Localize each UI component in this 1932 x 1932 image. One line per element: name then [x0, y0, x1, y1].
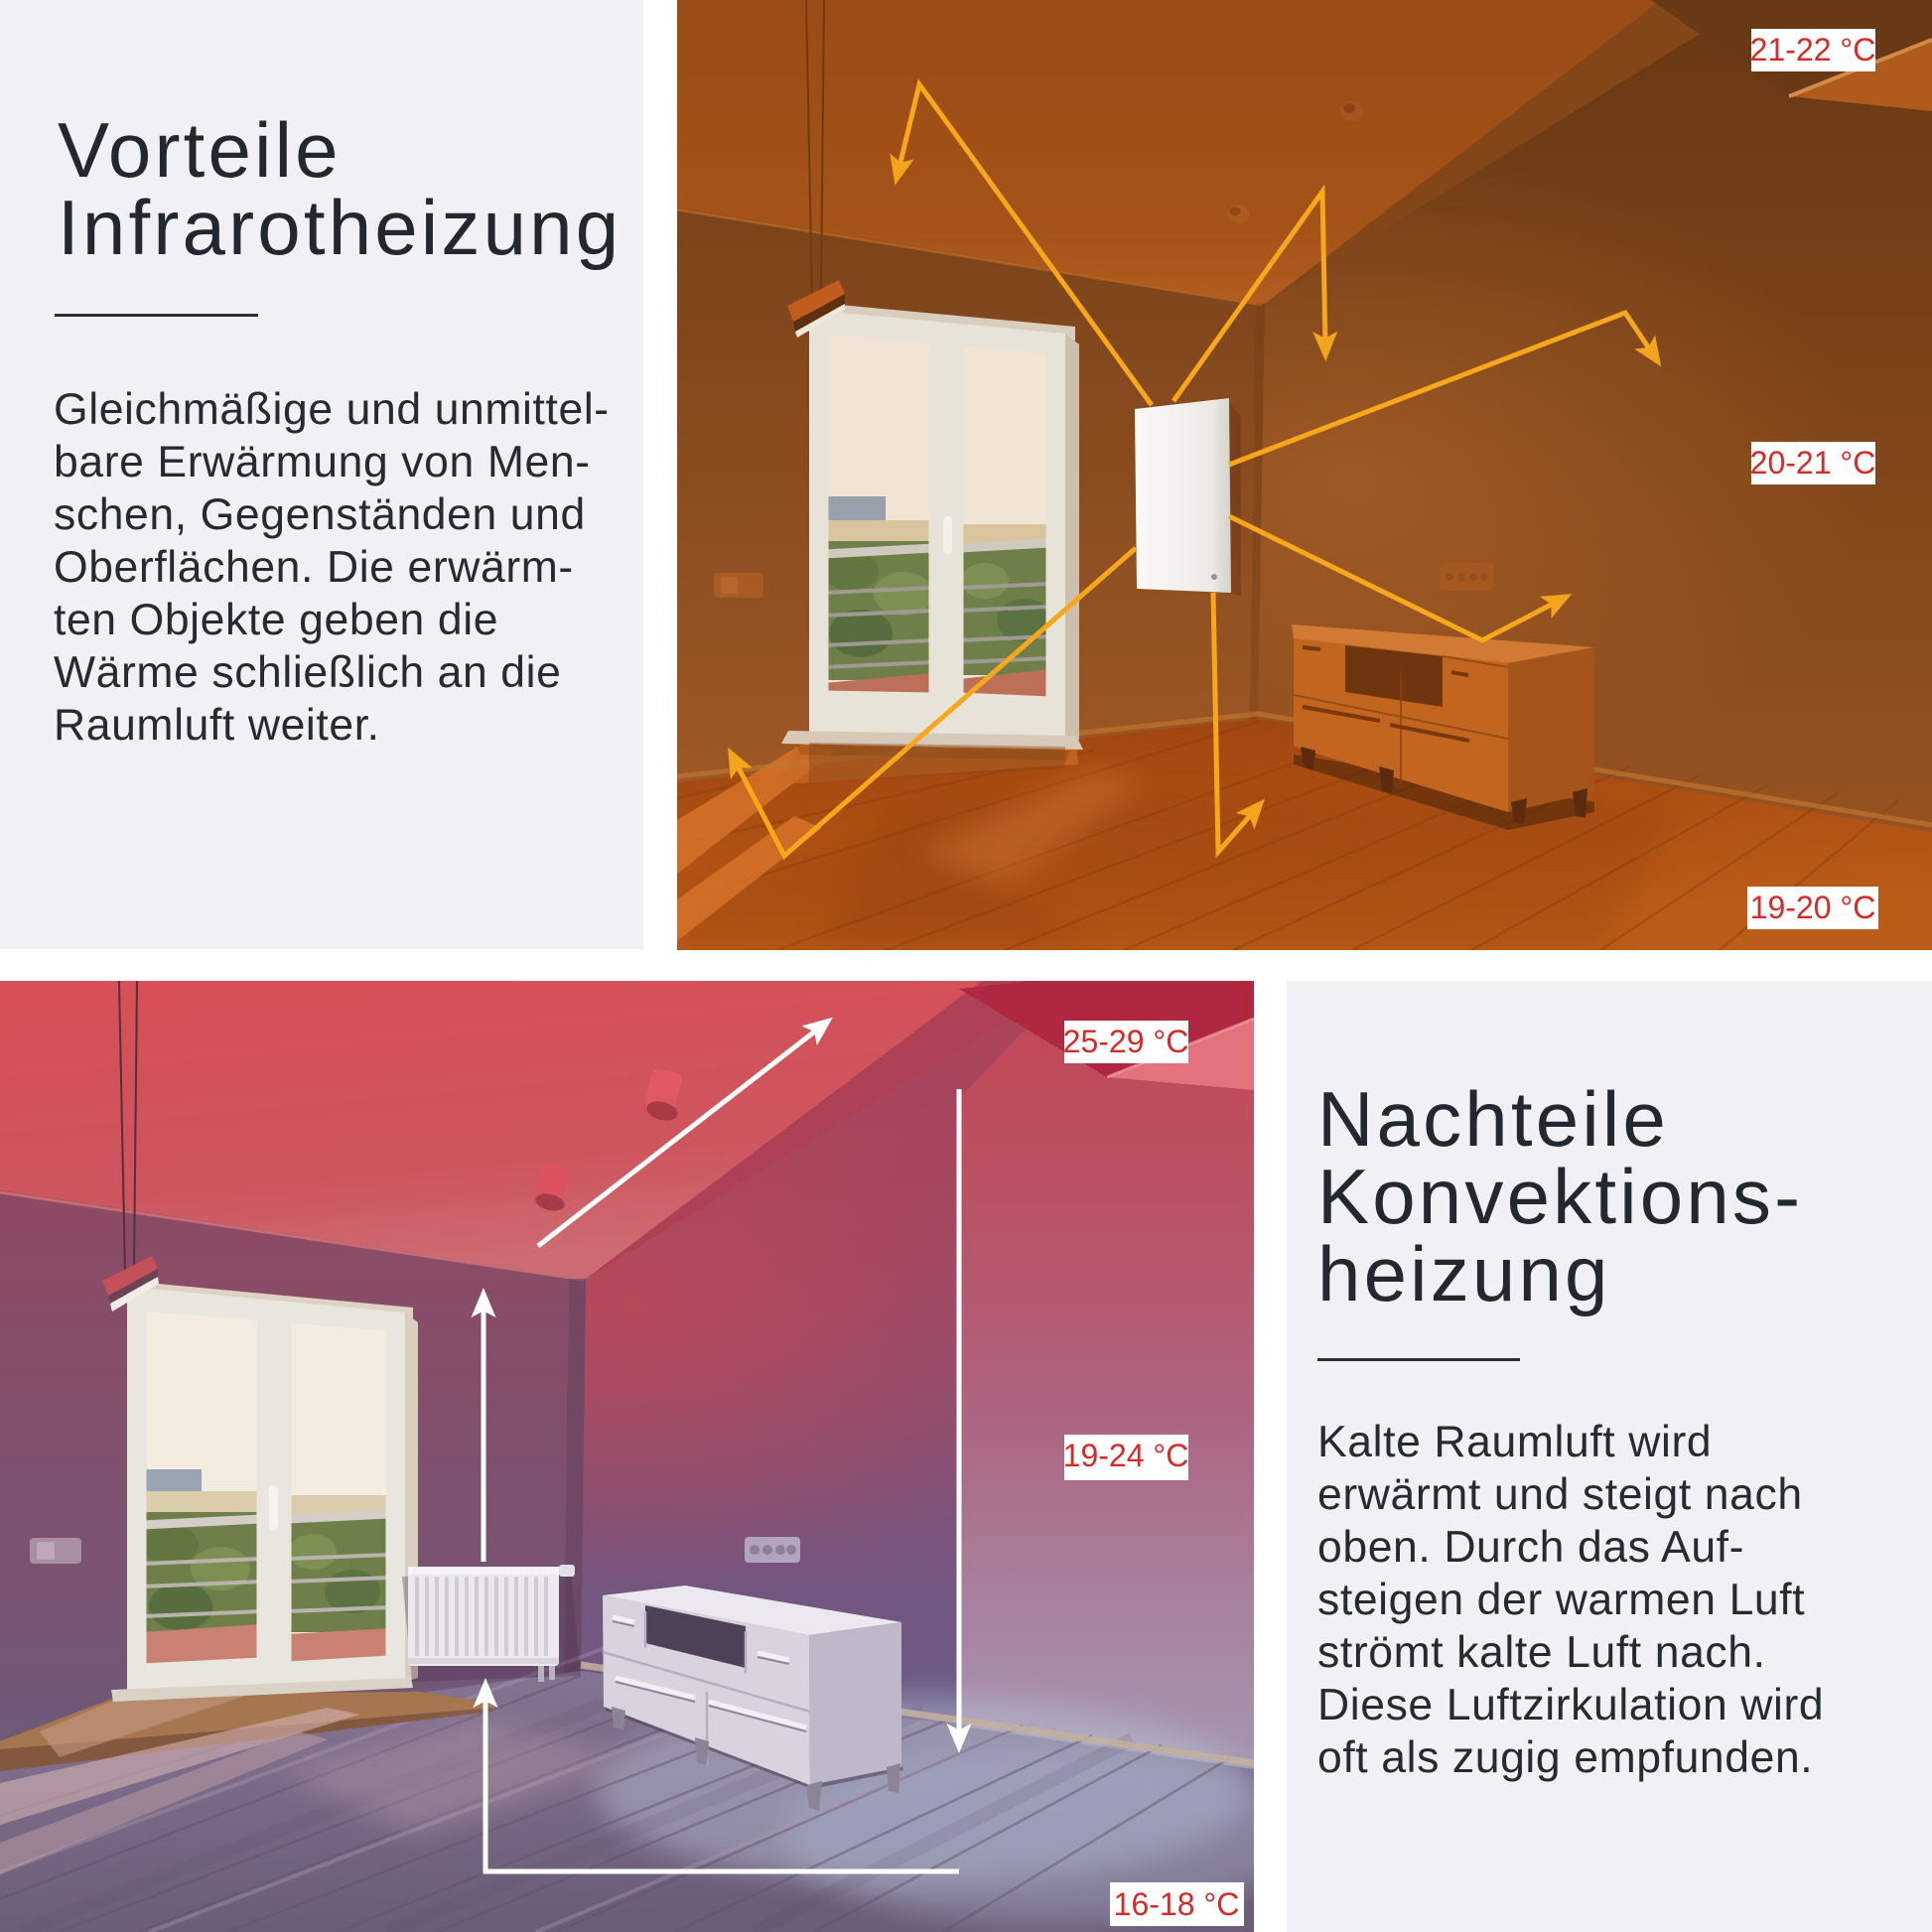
svg-text:19-20 °C: 19-20 °C: [1750, 890, 1876, 925]
svg-text:20-21 °C: 20-21 °C: [1750, 445, 1876, 481]
svg-text:19-24 °C: 19-24 °C: [1063, 1438, 1189, 1473]
svg-text:16-18 °C: 16-18 °C: [1114, 1886, 1240, 1922]
svg-text:25-29 °C: 25-29 °C: [1063, 1024, 1189, 1059]
svg-text:21-22 °C: 21-22 °C: [1750, 32, 1876, 68]
